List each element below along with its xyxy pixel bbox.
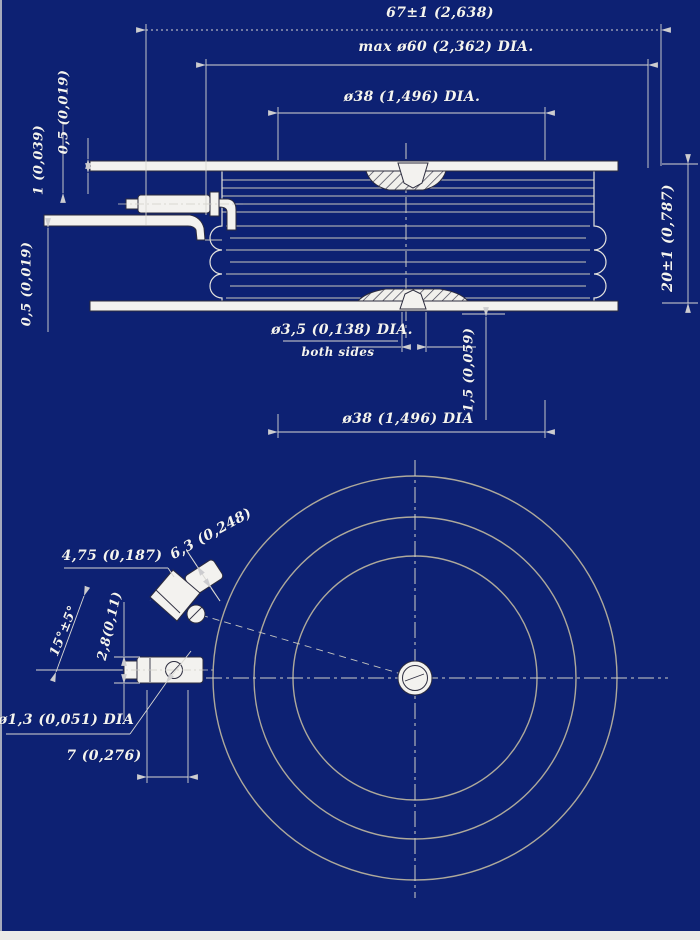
dim-terminal-length: 4,75 (0,187) bbox=[62, 548, 163, 564]
dim-pin-dia: ø1,3 (0,051) DIA bbox=[0, 712, 134, 728]
housing-fins bbox=[222, 180, 594, 298]
dim-top-contact-dia: ø38 (1,496) DIA. bbox=[344, 89, 480, 105]
terminal-screw bbox=[187, 605, 205, 623]
lower-flat-lead bbox=[44, 215, 222, 240]
dim-recess-depth: 1,5 (0,059) bbox=[462, 328, 477, 413]
dim-body-height: 20±1 (0,787) bbox=[660, 184, 676, 292]
dim-center-hole-note: both sides bbox=[302, 345, 375, 359]
dim-overall-width: 67±1 (2,638) bbox=[386, 5, 494, 21]
bottom-view-drawing bbox=[6, 460, 668, 898]
dim-gate-lead-thickness: 1 (0,039) bbox=[32, 125, 47, 195]
gate-terminal-assembly bbox=[114, 559, 224, 683]
bellows-left-edge bbox=[210, 171, 222, 301]
top-pole-plate bbox=[90, 161, 618, 171]
center-hub bbox=[398, 661, 432, 695]
bottom-pole-plate bbox=[90, 301, 618, 311]
drawing-frame bbox=[0, 0, 700, 940]
drawing-canvas bbox=[0, 0, 700, 940]
dim-pin-offset: 7 (0,276) bbox=[66, 748, 141, 764]
dim-max-body-dia: max ø60 (2,362) DIA. bbox=[358, 39, 533, 55]
dim-lower-lead-thickness: 0,5 (0,019) bbox=[20, 242, 35, 327]
dim-center-hole-dia: ø3,5 (0,138) DIA. bbox=[271, 322, 413, 338]
side-dimensions bbox=[48, 24, 698, 438]
dim-bottom-contact-dia: ø38 (1,496) DIA bbox=[342, 411, 473, 427]
side-view-drawing bbox=[44, 24, 698, 438]
technical-drawing: 67±1 (2,638) max ø60 (2,362) DIA. ø38 (1… bbox=[0, 0, 700, 940]
bellows-right-edge bbox=[594, 171, 606, 301]
dim-top-lead-thickness: 0,5 (0,019) bbox=[57, 70, 72, 155]
